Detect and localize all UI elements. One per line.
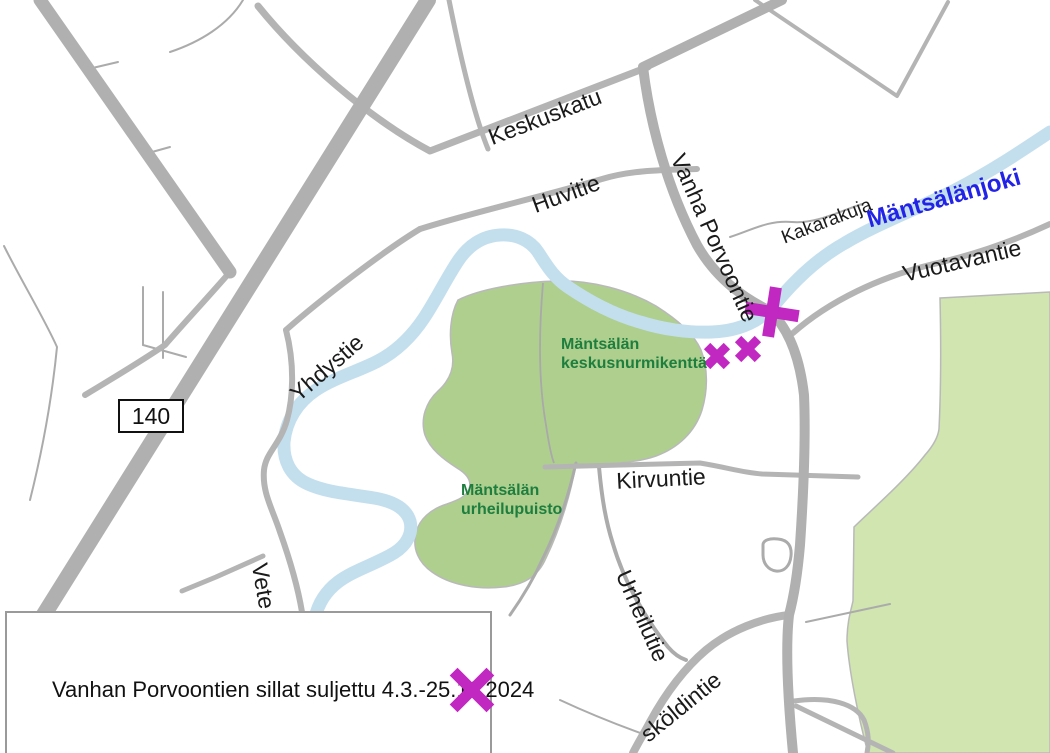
- road-number-badge: 140: [118, 399, 184, 433]
- park-right-polygon: [847, 292, 1050, 753]
- road-label-kirvuntie: Kirvuntie: [616, 463, 707, 495]
- closure-x-icon: [444, 662, 500, 718]
- road-stub-2: [152, 147, 170, 152]
- legend-box: Vanhan Porvoontien sillat suljettu 4.3.-…: [5, 611, 492, 753]
- road-huvitie-yhdystie-link: [286, 229, 420, 330]
- park-label-line: urheilupuisto: [461, 501, 562, 520]
- map-flyer: Keskuskatu Huvitie Vanha Porvoontie Kaka…: [0, 0, 1050, 753]
- road-loop-small: [763, 539, 791, 571]
- road-junction-southwest: [85, 272, 230, 395]
- road-keskuskatu-north-stub: [449, 0, 488, 149]
- park-label-urheilupuisto: Mäntsälän urheilupuisto: [461, 482, 562, 520]
- road-top-curve: [170, 0, 243, 52]
- road-hairline-skoldintie: [560, 700, 643, 734]
- park-label-line: Mäntsälän: [461, 482, 562, 501]
- road-thick-northwest: [40, 0, 230, 272]
- park-label-line: Mäntsälän: [561, 336, 707, 355]
- road-number-text: 140: [132, 403, 170, 430]
- park-label-line: keskusnurmikenttä: [561, 355, 707, 374]
- park-label-keskusnurmikentta: Mäntsälän keskusnurmikenttä: [561, 336, 707, 374]
- road-far-left: [4, 246, 57, 500]
- road-topright-corner: [755, 0, 948, 96]
- road-highway-140-path: [25, 0, 428, 645]
